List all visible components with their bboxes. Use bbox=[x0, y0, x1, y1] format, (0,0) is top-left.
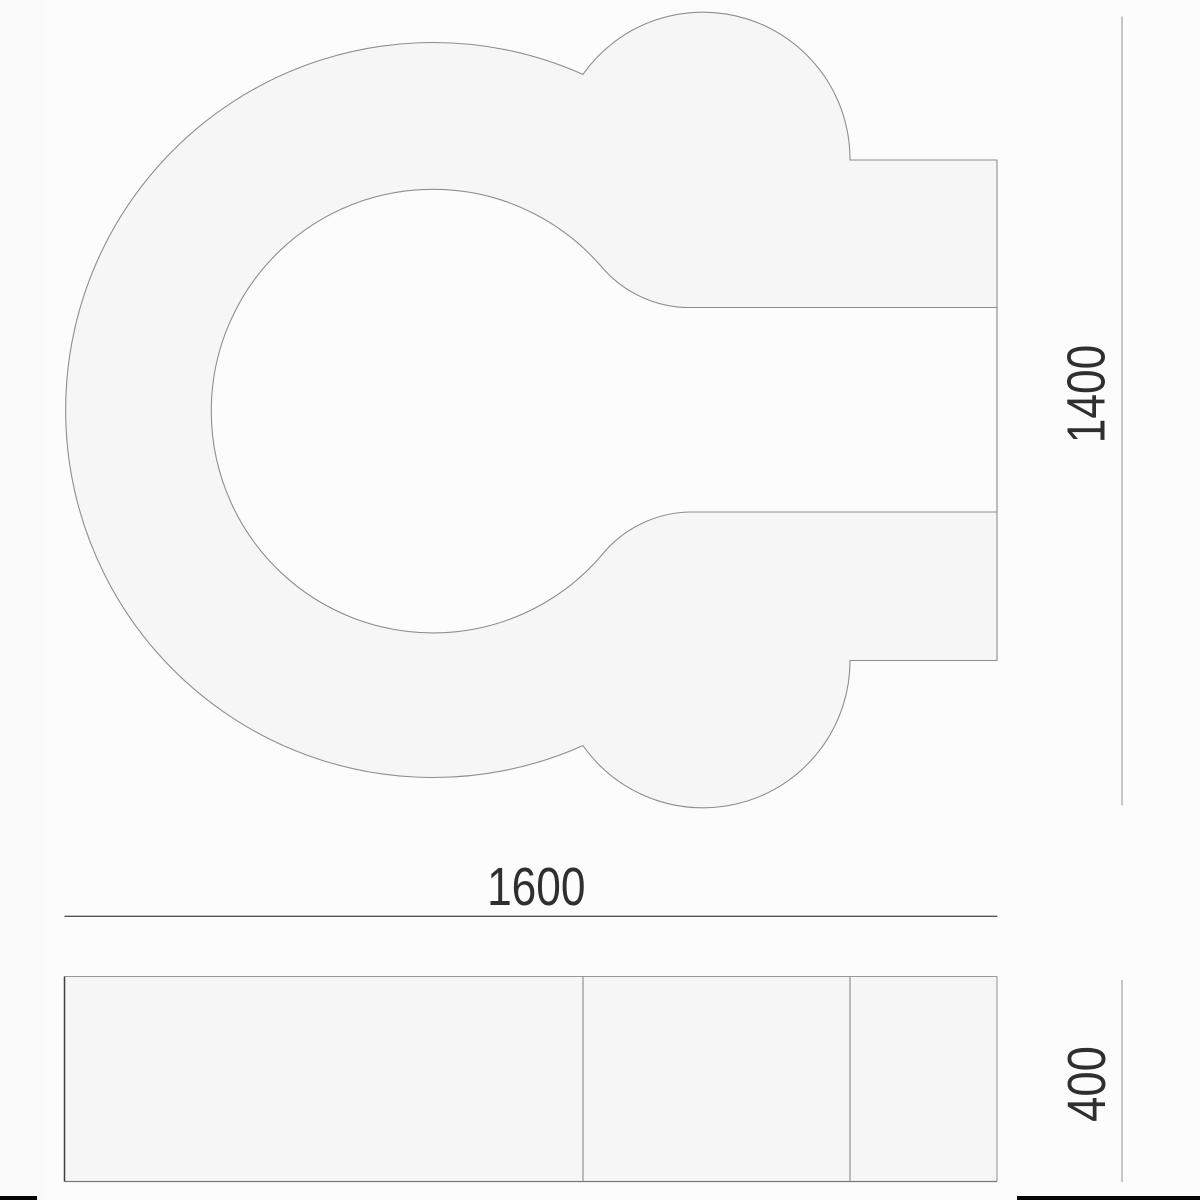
svg-text:1600: 1600 bbox=[487, 857, 585, 917]
svg-text:1400: 1400 bbox=[1056, 345, 1116, 443]
svg-text:400: 400 bbox=[1056, 1046, 1117, 1122]
